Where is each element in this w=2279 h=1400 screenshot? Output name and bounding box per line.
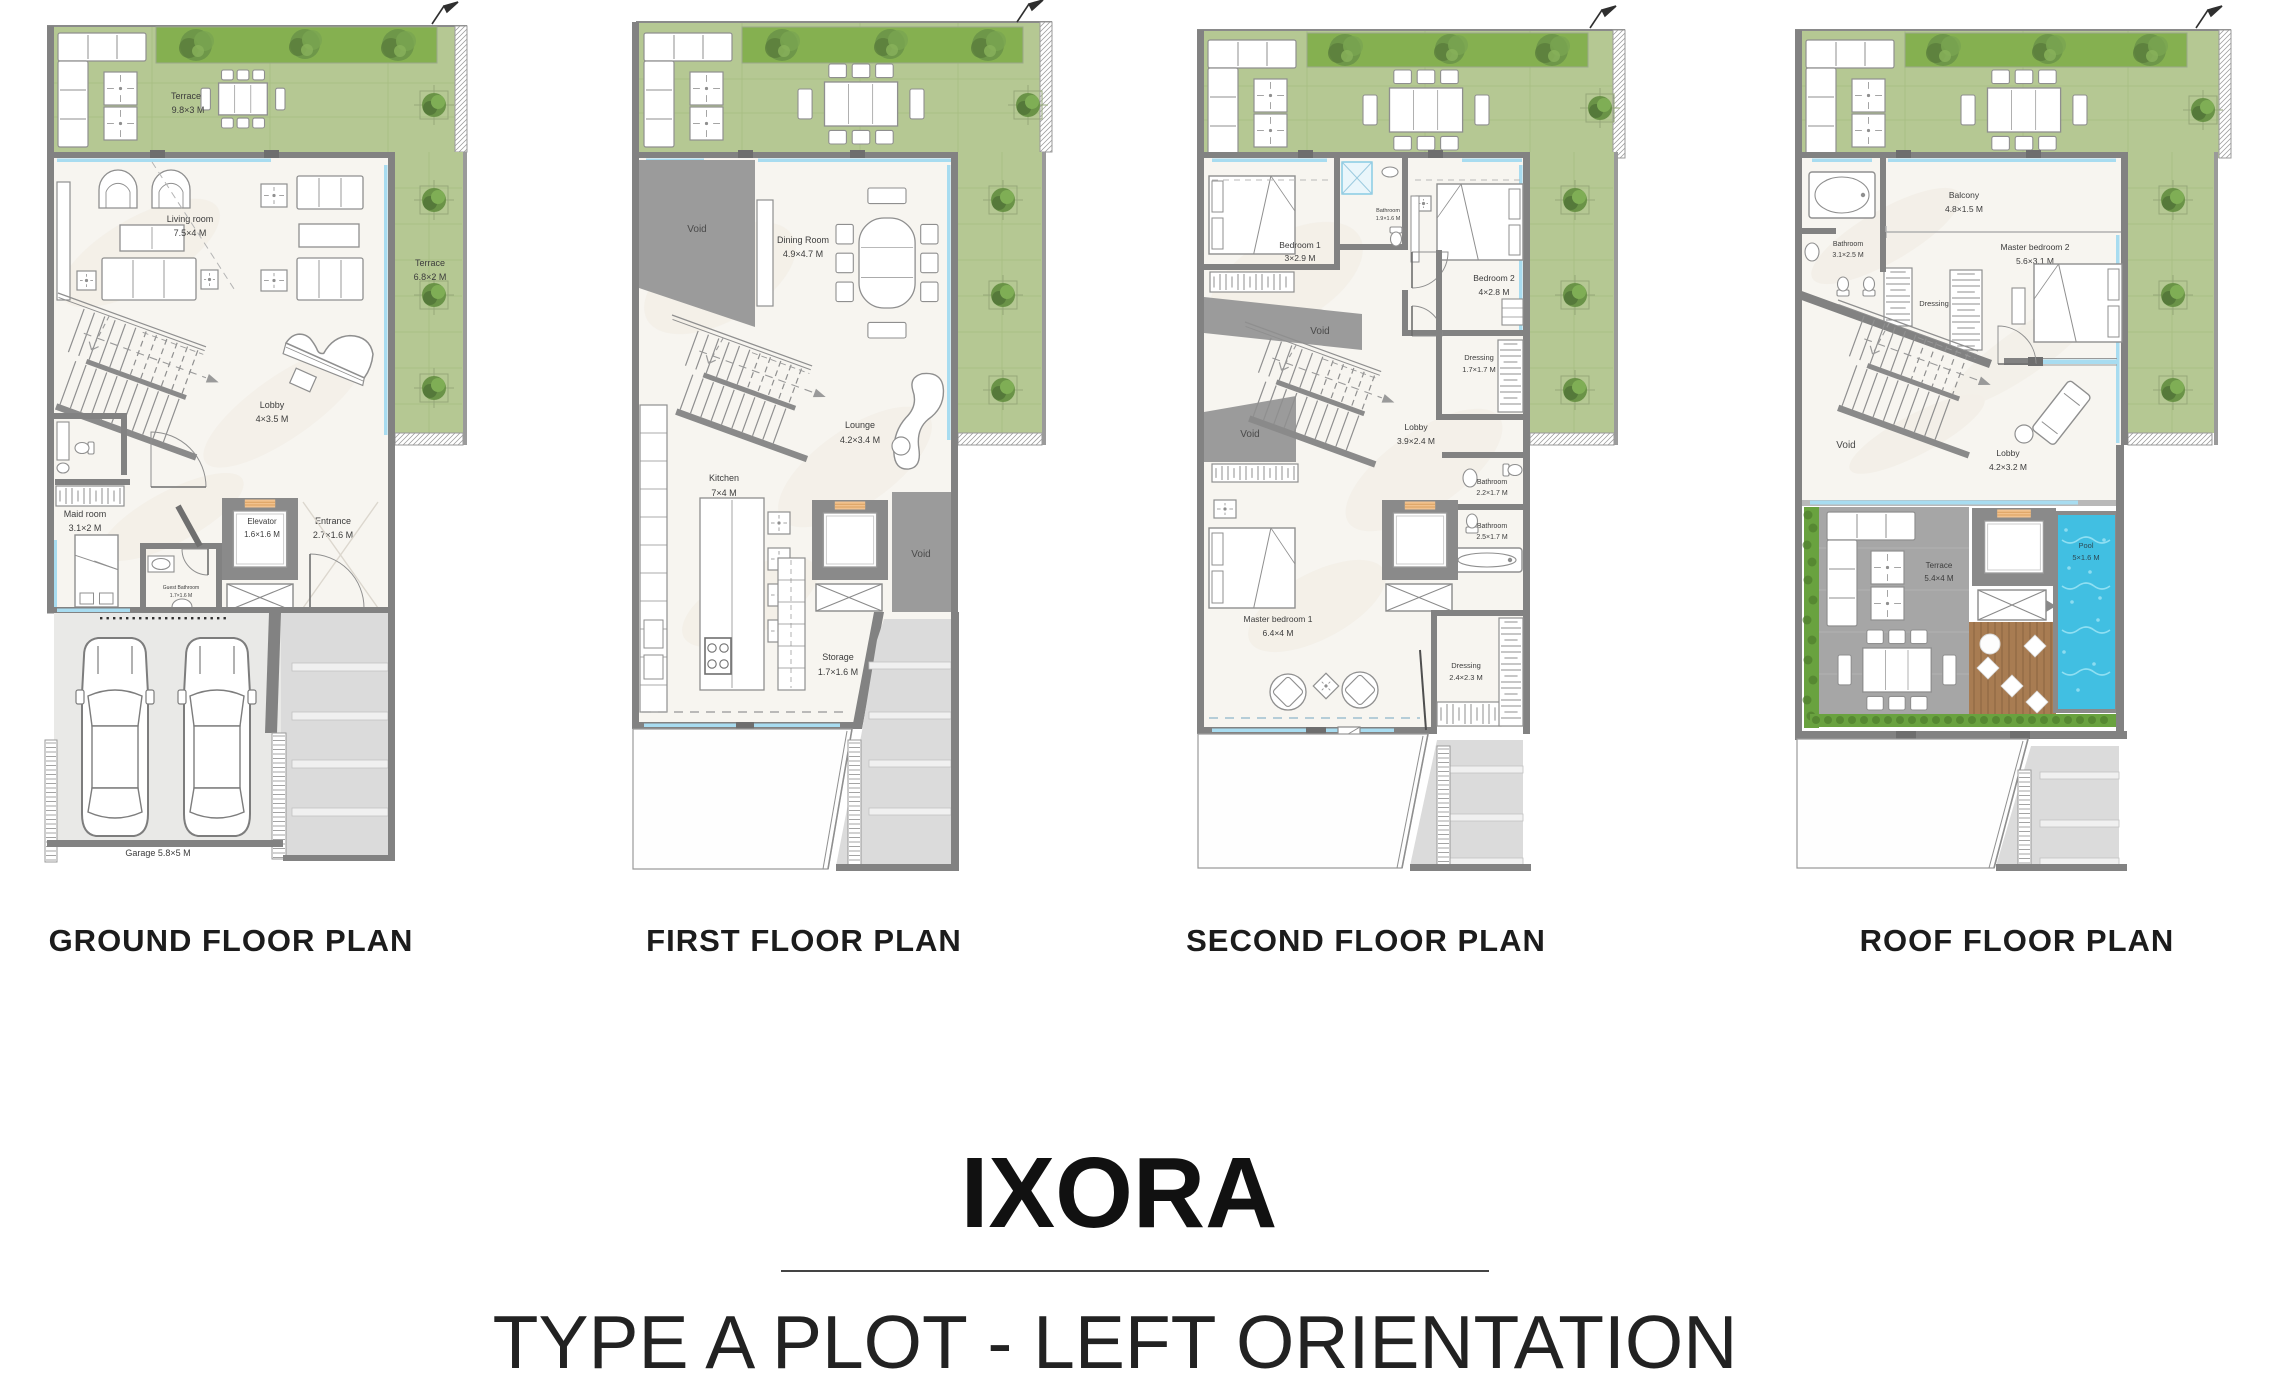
svg-text:Dressing: Dressing (1919, 299, 1949, 308)
svg-text:IXORA: IXORA (961, 1137, 1278, 1249)
svg-text:Entrance: Entrance (315, 516, 351, 526)
svg-text:7×4 M: 7×4 M (711, 488, 736, 498)
svg-text:Bathroom: Bathroom (1477, 523, 1508, 530)
svg-text:Dining Room: Dining Room (777, 235, 829, 245)
svg-text:Living room: Living room (167, 214, 214, 224)
svg-text:Master bedroom 2: Master bedroom 2 (2001, 242, 2070, 252)
svg-text:Bedroom 2: Bedroom 2 (1473, 273, 1515, 283)
svg-text:1.7×1.6 M: 1.7×1.6 M (818, 667, 858, 677)
svg-text:4×2.8 M: 4×2.8 M (1479, 287, 1510, 297)
svg-text:GROUND FLOOR PLAN: GROUND FLOOR PLAN (49, 923, 414, 958)
svg-text:Void: Void (1836, 440, 1855, 451)
svg-text:4×3.5 M: 4×3.5 M (256, 414, 289, 424)
svg-text:3.9×2.4 M: 3.9×2.4 M (1397, 436, 1435, 446)
svg-text:Bathroom: Bathroom (1376, 208, 1400, 214)
svg-text:1.6×1.6 M: 1.6×1.6 M (244, 530, 280, 539)
svg-text:SECOND FLOOR PLAN: SECOND FLOOR PLAN (1186, 923, 1546, 958)
svg-text:Terrace: Terrace (415, 258, 445, 268)
svg-text:6.8×2 M: 6.8×2 M (414, 272, 447, 282)
svg-text:3.1×2.5 M: 3.1×2.5 M (1832, 252, 1863, 259)
svg-text:1.7×1.6 M: 1.7×1.6 M (170, 593, 192, 599)
svg-text:FIRST FLOOR PLAN: FIRST FLOOR PLAN (646, 923, 962, 958)
svg-text:ROOF FLOOR PLAN: ROOF FLOOR PLAN (1860, 923, 2175, 958)
svg-text:Dressing: Dressing (1451, 661, 1481, 670)
svg-text:6.4×4 M: 6.4×4 M (1263, 628, 1294, 638)
svg-text:4.2×3.2 M: 4.2×3.2 M (1989, 462, 2027, 472)
svg-text:TYPE A PLOT - LEFT ORIENTATION: TYPE A PLOT - LEFT ORIENTATION (493, 1300, 1738, 1384)
svg-text:Lobby: Lobby (1996, 448, 2020, 458)
svg-text:2.7×1.6 M: 2.7×1.6 M (313, 530, 353, 540)
svg-text:Lobby: Lobby (1404, 422, 1428, 432)
svg-text:Pool: Pool (2078, 541, 2093, 550)
svg-text:Storage: Storage (822, 652, 854, 662)
svg-text:4.9×4.7 M: 4.9×4.7 M (783, 249, 823, 259)
svg-text:Lounge: Lounge (845, 420, 875, 430)
svg-text:3.1×2 M: 3.1×2 M (69, 523, 102, 533)
svg-text:Maid room: Maid room (64, 509, 107, 519)
svg-text:Void: Void (911, 549, 930, 560)
svg-text:Kitchen: Kitchen (709, 473, 739, 483)
svg-text:Bedroom 1: Bedroom 1 (1279, 240, 1321, 250)
svg-text:3×2.9 M: 3×2.9 M (1285, 253, 1316, 263)
svg-text:2.4×2.3 M: 2.4×2.3 M (1449, 673, 1483, 682)
svg-text:Dressing: Dressing (1464, 353, 1494, 362)
svg-text:1.7×1.7 M: 1.7×1.7 M (1462, 365, 1496, 374)
svg-text:Void: Void (1240, 429, 1259, 440)
svg-text:2.5×1.7 M: 2.5×1.7 M (1476, 534, 1507, 541)
svg-text:Void: Void (687, 224, 706, 235)
svg-text:4.8×1.5 M: 4.8×1.5 M (1945, 204, 1983, 214)
svg-text:Garage 5.8×5 M: Garage 5.8×5 M (125, 848, 190, 858)
svg-text:Elevator: Elevator (247, 517, 277, 526)
svg-text:5×1.6 M: 5×1.6 M (2072, 553, 2099, 562)
svg-text:Bathroom: Bathroom (1477, 479, 1508, 486)
svg-text:Terrace: Terrace (1926, 561, 1953, 570)
svg-text:Terrace: Terrace (171, 91, 201, 101)
svg-text:Balcony: Balcony (1949, 190, 1980, 200)
svg-text:Master bedroom 1: Master bedroom 1 (1244, 614, 1313, 624)
svg-text:9.8×3 M: 9.8×3 M (172, 105, 205, 115)
svg-text:1.9×1.6 M: 1.9×1.6 M (1376, 216, 1401, 222)
svg-text:7.5×4 M: 7.5×4 M (174, 228, 207, 238)
svg-text:Bathroom: Bathroom (1833, 241, 1864, 248)
svg-text:2.2×1.7 M: 2.2×1.7 M (1476, 490, 1507, 497)
svg-text:5.4×4 M: 5.4×4 M (1924, 574, 1953, 583)
svg-text:Lobby: Lobby (260, 400, 285, 410)
svg-text:Void: Void (1310, 326, 1329, 337)
svg-text:Guest Bathroom: Guest Bathroom (163, 585, 199, 591)
svg-text:4.2×3.4 M: 4.2×3.4 M (840, 435, 880, 445)
